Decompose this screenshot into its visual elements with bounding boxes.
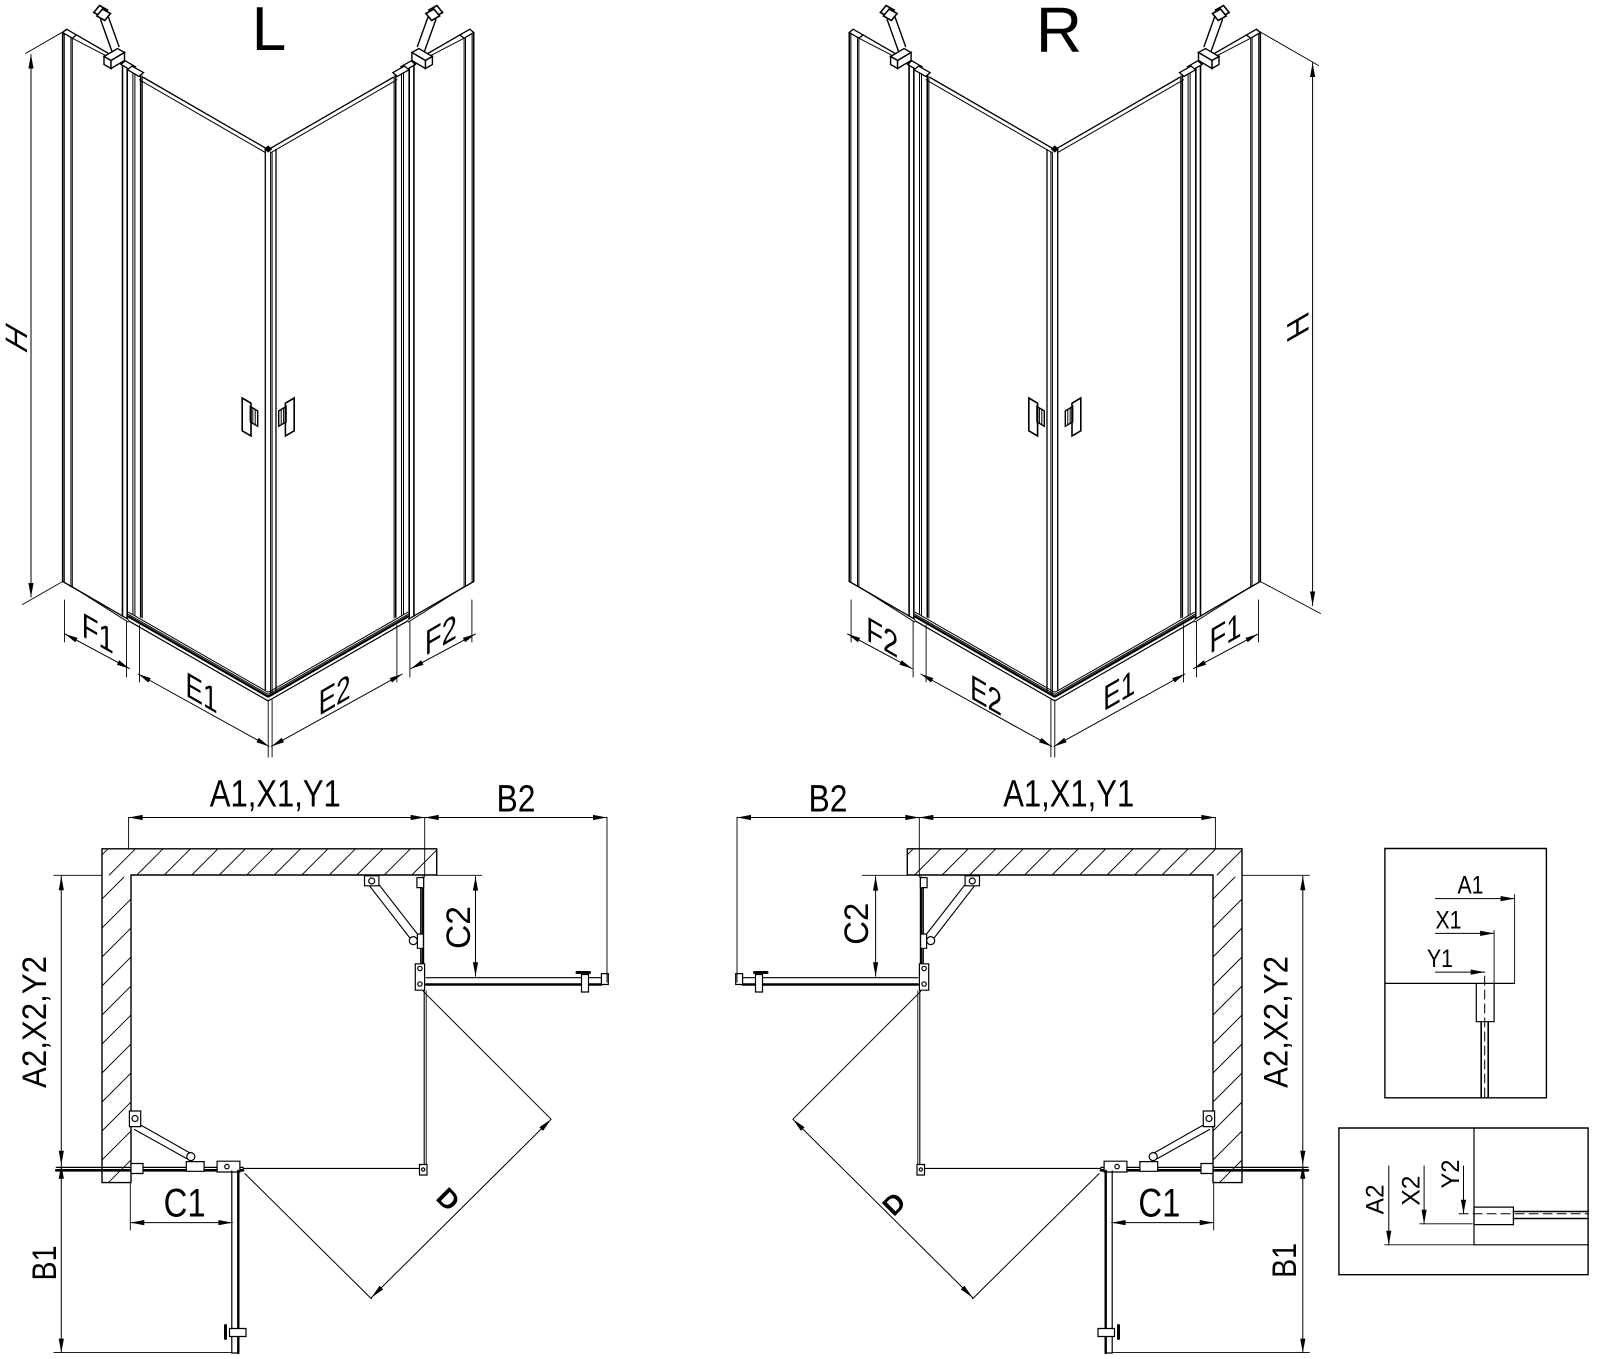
svg-text:Y1: Y1	[1427, 945, 1453, 973]
svg-text:C1: C1	[1138, 1182, 1180, 1226]
svg-text:B1: B1	[1266, 1243, 1304, 1278]
svg-text:A1: A1	[1458, 872, 1484, 900]
svg-text:B2: B2	[809, 779, 848, 821]
svg-text:A2,X2,Y2: A2,X2,Y2	[16, 956, 54, 1088]
svg-text:A1,X1,Y1: A1,X1,Y1	[1003, 774, 1134, 816]
svg-text:R: R	[1036, 0, 1082, 66]
svg-text:X2: X2	[1397, 1176, 1425, 1206]
svg-text:B2: B2	[497, 779, 536, 821]
svg-text:A2,X2,Y2: A2,X2,Y2	[1257, 956, 1295, 1088]
svg-text:L: L	[252, 0, 286, 64]
svg-text:X1: X1	[1436, 906, 1462, 934]
svg-text:C2: C2	[440, 906, 478, 949]
svg-text:A2: A2	[1362, 1184, 1390, 1214]
svg-text:A1,X1,Y1: A1,X1,Y1	[210, 774, 341, 816]
svg-text:B1: B1	[26, 1246, 64, 1281]
svg-text:C1: C1	[164, 1182, 206, 1226]
svg-text:Y2: Y2	[1437, 1160, 1465, 1189]
svg-text:C2: C2	[838, 903, 876, 945]
